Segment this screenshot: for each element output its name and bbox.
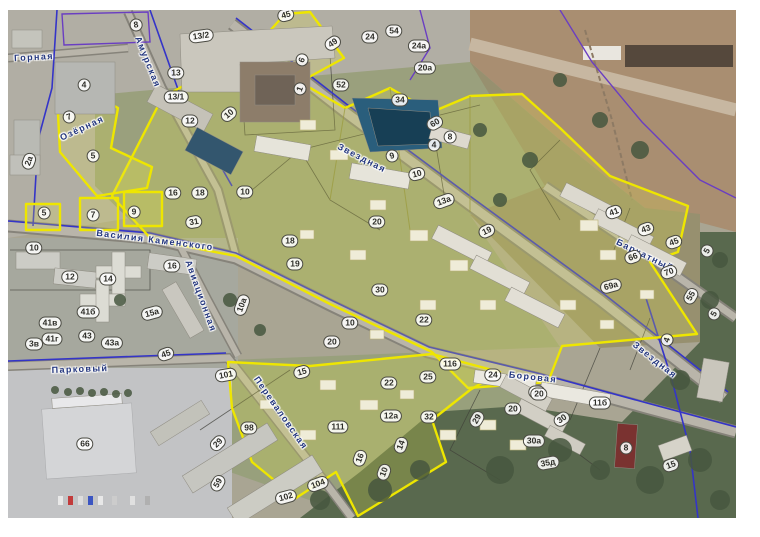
map-container: ГорнаяАмурскаяОзёрнаяВасилия КаменскогоА… <box>8 10 736 518</box>
map-figure: ГорнаяАмурскаяОзёрнаяВасилия КаменскогоА… <box>0 0 760 537</box>
map-canvas <box>8 10 736 518</box>
